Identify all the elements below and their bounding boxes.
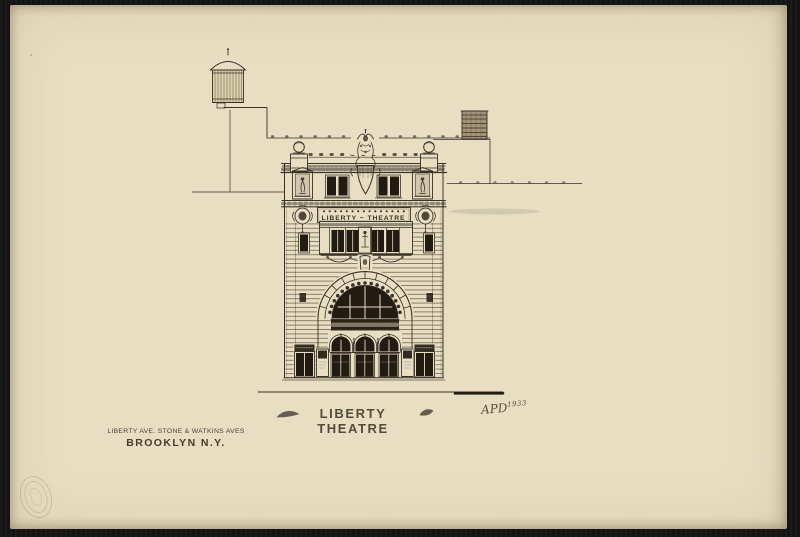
water-tower-icon (211, 48, 246, 108)
elevation-drawing: LIBERTY ~ THEATRE (0, 0, 800, 537)
signature-initials: APD (480, 401, 507, 417)
poster-box-left (316, 348, 329, 377)
corner-ball-finial-left (291, 142, 308, 172)
entrance-doors (331, 354, 399, 378)
pier-plaque-left (300, 293, 307, 302)
drawing-title: LIBERTY THEATRE (291, 406, 415, 436)
pencil-smudge (450, 209, 540, 215)
side-door-left (294, 344, 316, 378)
pier-plaque-right (427, 293, 434, 302)
mezzanine-windows (320, 222, 413, 256)
balcony-band (331, 320, 399, 331)
address-line-1: LIBERTY AVE. STONE & WATKINS AVES (93, 428, 259, 436)
signature-year: 1933 (507, 399, 527, 409)
scanned-drawing: LIBERTY ~ THEATRE (0, 0, 800, 537)
rooftop-tank-icon (461, 111, 488, 139)
pier-window-left (299, 233, 310, 253)
theatre-facade: LIBERTY ~ THEATRE (281, 127, 447, 380)
left-roof-parapet (224, 108, 267, 139)
address-line-2: BROOKLYN N.Y. (93, 437, 259, 449)
poster-box-right (401, 348, 414, 377)
marquee-text: LIBERTY ~ THEATRE (322, 215, 406, 222)
right-roof-parapet (434, 140, 583, 184)
blind-stamp (15, 472, 57, 521)
side-door-right (414, 344, 436, 378)
marquee-bulbs-icon (323, 210, 405, 212)
pencil-dot (30, 54, 32, 56)
pier-window-right (424, 233, 435, 253)
ground-line (258, 392, 503, 393)
facade-base (283, 378, 446, 380)
title-flourish-right-icon (420, 409, 434, 415)
address-block: LIBERTY AVE. STONE & WATKINS AVES BROOKL… (93, 428, 259, 449)
